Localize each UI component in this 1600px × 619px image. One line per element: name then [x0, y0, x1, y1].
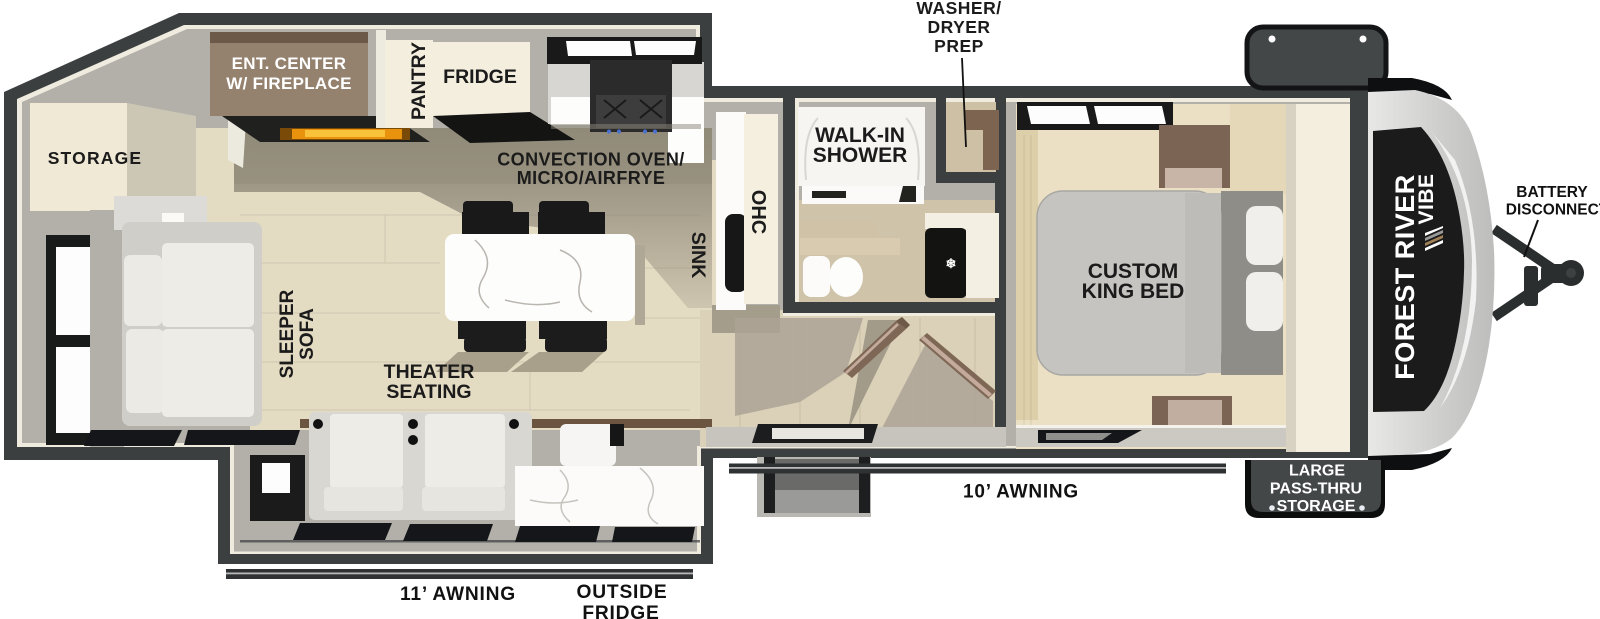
svg-text:VIBE: VIBE	[1415, 173, 1438, 224]
svg-text:PASS-THRU: PASS-THRU	[1270, 481, 1362, 498]
svg-text:WASHER/: WASHER/	[916, 0, 1001, 18]
svg-text:MICRO/AIRFRYE: MICRO/AIRFRYE	[517, 168, 666, 188]
svg-text:STORAGE: STORAGE	[1277, 498, 1356, 515]
svg-text:DISCONNECT: DISCONNECT	[1506, 202, 1600, 219]
svg-text:OUTSIDE: OUTSIDE	[577, 582, 668, 603]
svg-text:BATTERY: BATTERY	[1516, 184, 1588, 201]
svg-text:SEATING: SEATING	[386, 381, 471, 403]
svg-text:FRIDGE: FRIDGE	[582, 603, 659, 619]
svg-text:OHC: OHC	[747, 190, 769, 234]
svg-text:10’ AWNING: 10’ AWNING	[963, 482, 1079, 503]
svg-text:11’ AWNING: 11’ AWNING	[400, 584, 516, 605]
svg-text:ENT. CENTER: ENT. CENTER	[232, 54, 347, 73]
svg-text:SINK: SINK	[687, 232, 709, 279]
svg-text:❄: ❄	[946, 256, 957, 271]
svg-text:SHOWER: SHOWER	[813, 144, 908, 167]
svg-text:LARGE: LARGE	[1289, 463, 1345, 480]
svg-text:W/ FIREPLACE: W/ FIREPLACE	[226, 74, 351, 93]
svg-text:STORAGE: STORAGE	[48, 148, 143, 168]
svg-text:FRIDGE: FRIDGE	[443, 66, 517, 88]
svg-text:DRYER: DRYER	[927, 17, 990, 37]
svg-text:PANTRY: PANTRY	[408, 42, 430, 120]
svg-text:PREP: PREP	[934, 36, 984, 56]
svg-text:THEATER: THEATER	[384, 361, 475, 383]
svg-text:CONVECTION OVEN/: CONVECTION OVEN/	[497, 150, 684, 170]
svg-text:KING BED: KING BED	[1082, 280, 1185, 303]
